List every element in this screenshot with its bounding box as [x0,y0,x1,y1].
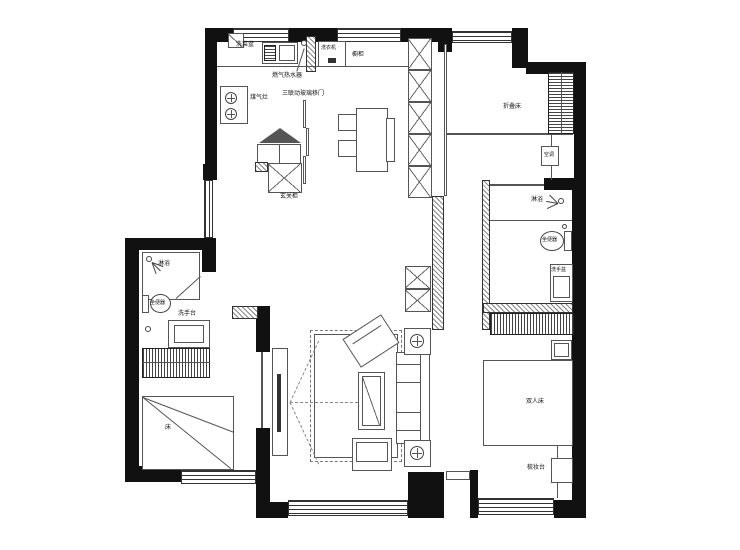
wall-bed2-right-upper [256,306,270,352]
label-washing-machine: 洗衣机 [321,46,336,51]
label-folding-bed: 折叠床 [503,104,521,110]
entry-door [446,471,470,480]
label-toilet-master: 坐便器 [542,238,557,243]
wall-strip-master-left [470,470,478,518]
sliding-door-panel-1 [303,100,306,128]
hall-partition [432,196,444,330]
nightstand-inner [554,343,569,357]
label-dresser: 梳妆台 [527,465,545,471]
bed2-wardrobe-divider [142,362,210,363]
toilet-2-tank [142,295,149,313]
wall-bed2-right-lower [256,428,270,518]
label-washbasin-master: 洗手盆 [551,268,566,273]
wall-bath2-left [125,238,139,478]
wall-bath-topright [544,178,584,190]
sliding-door-panel-3 [303,156,306,184]
entry-bench-peak [259,128,301,143]
hall-cabinet-4 [408,134,432,166]
dresser-box [551,458,573,483]
label-sink: 洗菜盆 [236,42,254,48]
coffee-table-glass [362,376,381,426]
bed2-wardrobe [142,348,210,378]
hall-cabinet-6 [405,266,431,289]
bed2-window [181,470,256,484]
label-bed-second: 床 [165,425,171,431]
master-window [478,498,554,515]
label-cupboard: 橱柜 [352,52,364,58]
hall-cabinet-1 [408,38,432,70]
sink-drainboard [264,45,276,61]
shower-head-2-icon [146,256,152,262]
dining-chair-2 [338,140,358,157]
floor-plan: 洗菜盆 洗衣机 橱柜 燃气热水器 煤气灶 三联动玻璃移门 玄关柜 折叠床 空调 … [0,0,740,550]
tv-screen [277,374,281,432]
label-washstand-second: 洗手台 [178,311,196,317]
kitchen-window-2 [337,28,401,42]
wall-kitchen-left [205,28,217,168]
sofa-cushion-2 [397,412,420,413]
plant-bottom [410,446,424,460]
label-air-conditioner: 空调 [544,153,554,158]
hall-cabinet-5 [408,166,432,198]
entry-cabinet-box [268,163,302,193]
shower-spray-m1 [547,203,558,209]
nursery-left-wall [444,44,447,196]
wall-balcony-cap [268,502,288,518]
bath2-partition [232,306,258,319]
label-gas-water-heater: 燃气热水器 [272,73,302,79]
wall-right-bath [572,190,586,313]
tv-sightline-center [290,402,358,403]
entry-bench-divider [279,144,280,164]
nursery-wardrobe-divider [561,72,562,134]
basin-master-bowl [553,276,570,298]
kitchen-counter-edge [217,66,408,67]
toilet-master-tank [564,231,572,251]
bath-divider [490,220,572,221]
label-shower-second: 淋浴 [158,261,170,267]
hall-cabinet-3 [408,102,432,134]
bath-bottom-partition [483,303,573,313]
label-shower-master: 淋浴 [531,197,543,203]
label-toilet-second: 坐便器 [150,301,165,306]
stove-burner-1 [225,92,237,104]
sliding-door-panel-2 [306,128,309,156]
washing-machine-door [328,58,336,63]
label-entry-cabinet: 玄关柜 [280,194,298,200]
floor-drain-2 [145,326,151,332]
sink-basin [279,45,295,61]
dining-bench [386,118,395,162]
wall-under-left-window [202,238,216,272]
armchair-top-cushion [352,325,381,344]
armchair-bottom-cushion [356,442,388,462]
dining-chair-1 [338,114,358,131]
wall-corner-br [554,500,586,518]
label-double-bed: 双人床 [526,399,544,405]
shower-head-master-icon [558,198,564,204]
floor-drain-master [562,224,567,229]
balcony-window [288,500,408,516]
plant-top [410,334,424,348]
wall-bottom-chunk [408,472,444,518]
sofa-armrest-bottom [397,430,420,431]
label-gas-stove: 煤气灶 [250,95,268,101]
stove-burner-2 [225,108,237,120]
entry-hatch-strip [255,162,268,172]
sofa-armrest-top [397,364,420,365]
dining-table [356,108,388,172]
wall-right-master [572,313,586,512]
left-window [204,180,213,238]
hall-cabinet-2 [408,70,432,102]
hall-cabinet-7 [405,289,431,312]
sofa-cushion-1 [397,382,420,383]
bed2-door-panel [261,352,263,428]
sofa-backrest [420,353,421,443]
washstand-2-basin [174,325,204,343]
wall-right-upper [574,62,586,190]
water-heater-icon [301,40,307,46]
nursery-window [452,31,512,43]
label-glass-sliding-door: 三联动玻璃移门 [282,91,324,97]
master-wardrobe [490,313,574,335]
bath-top-wall [490,184,544,186]
